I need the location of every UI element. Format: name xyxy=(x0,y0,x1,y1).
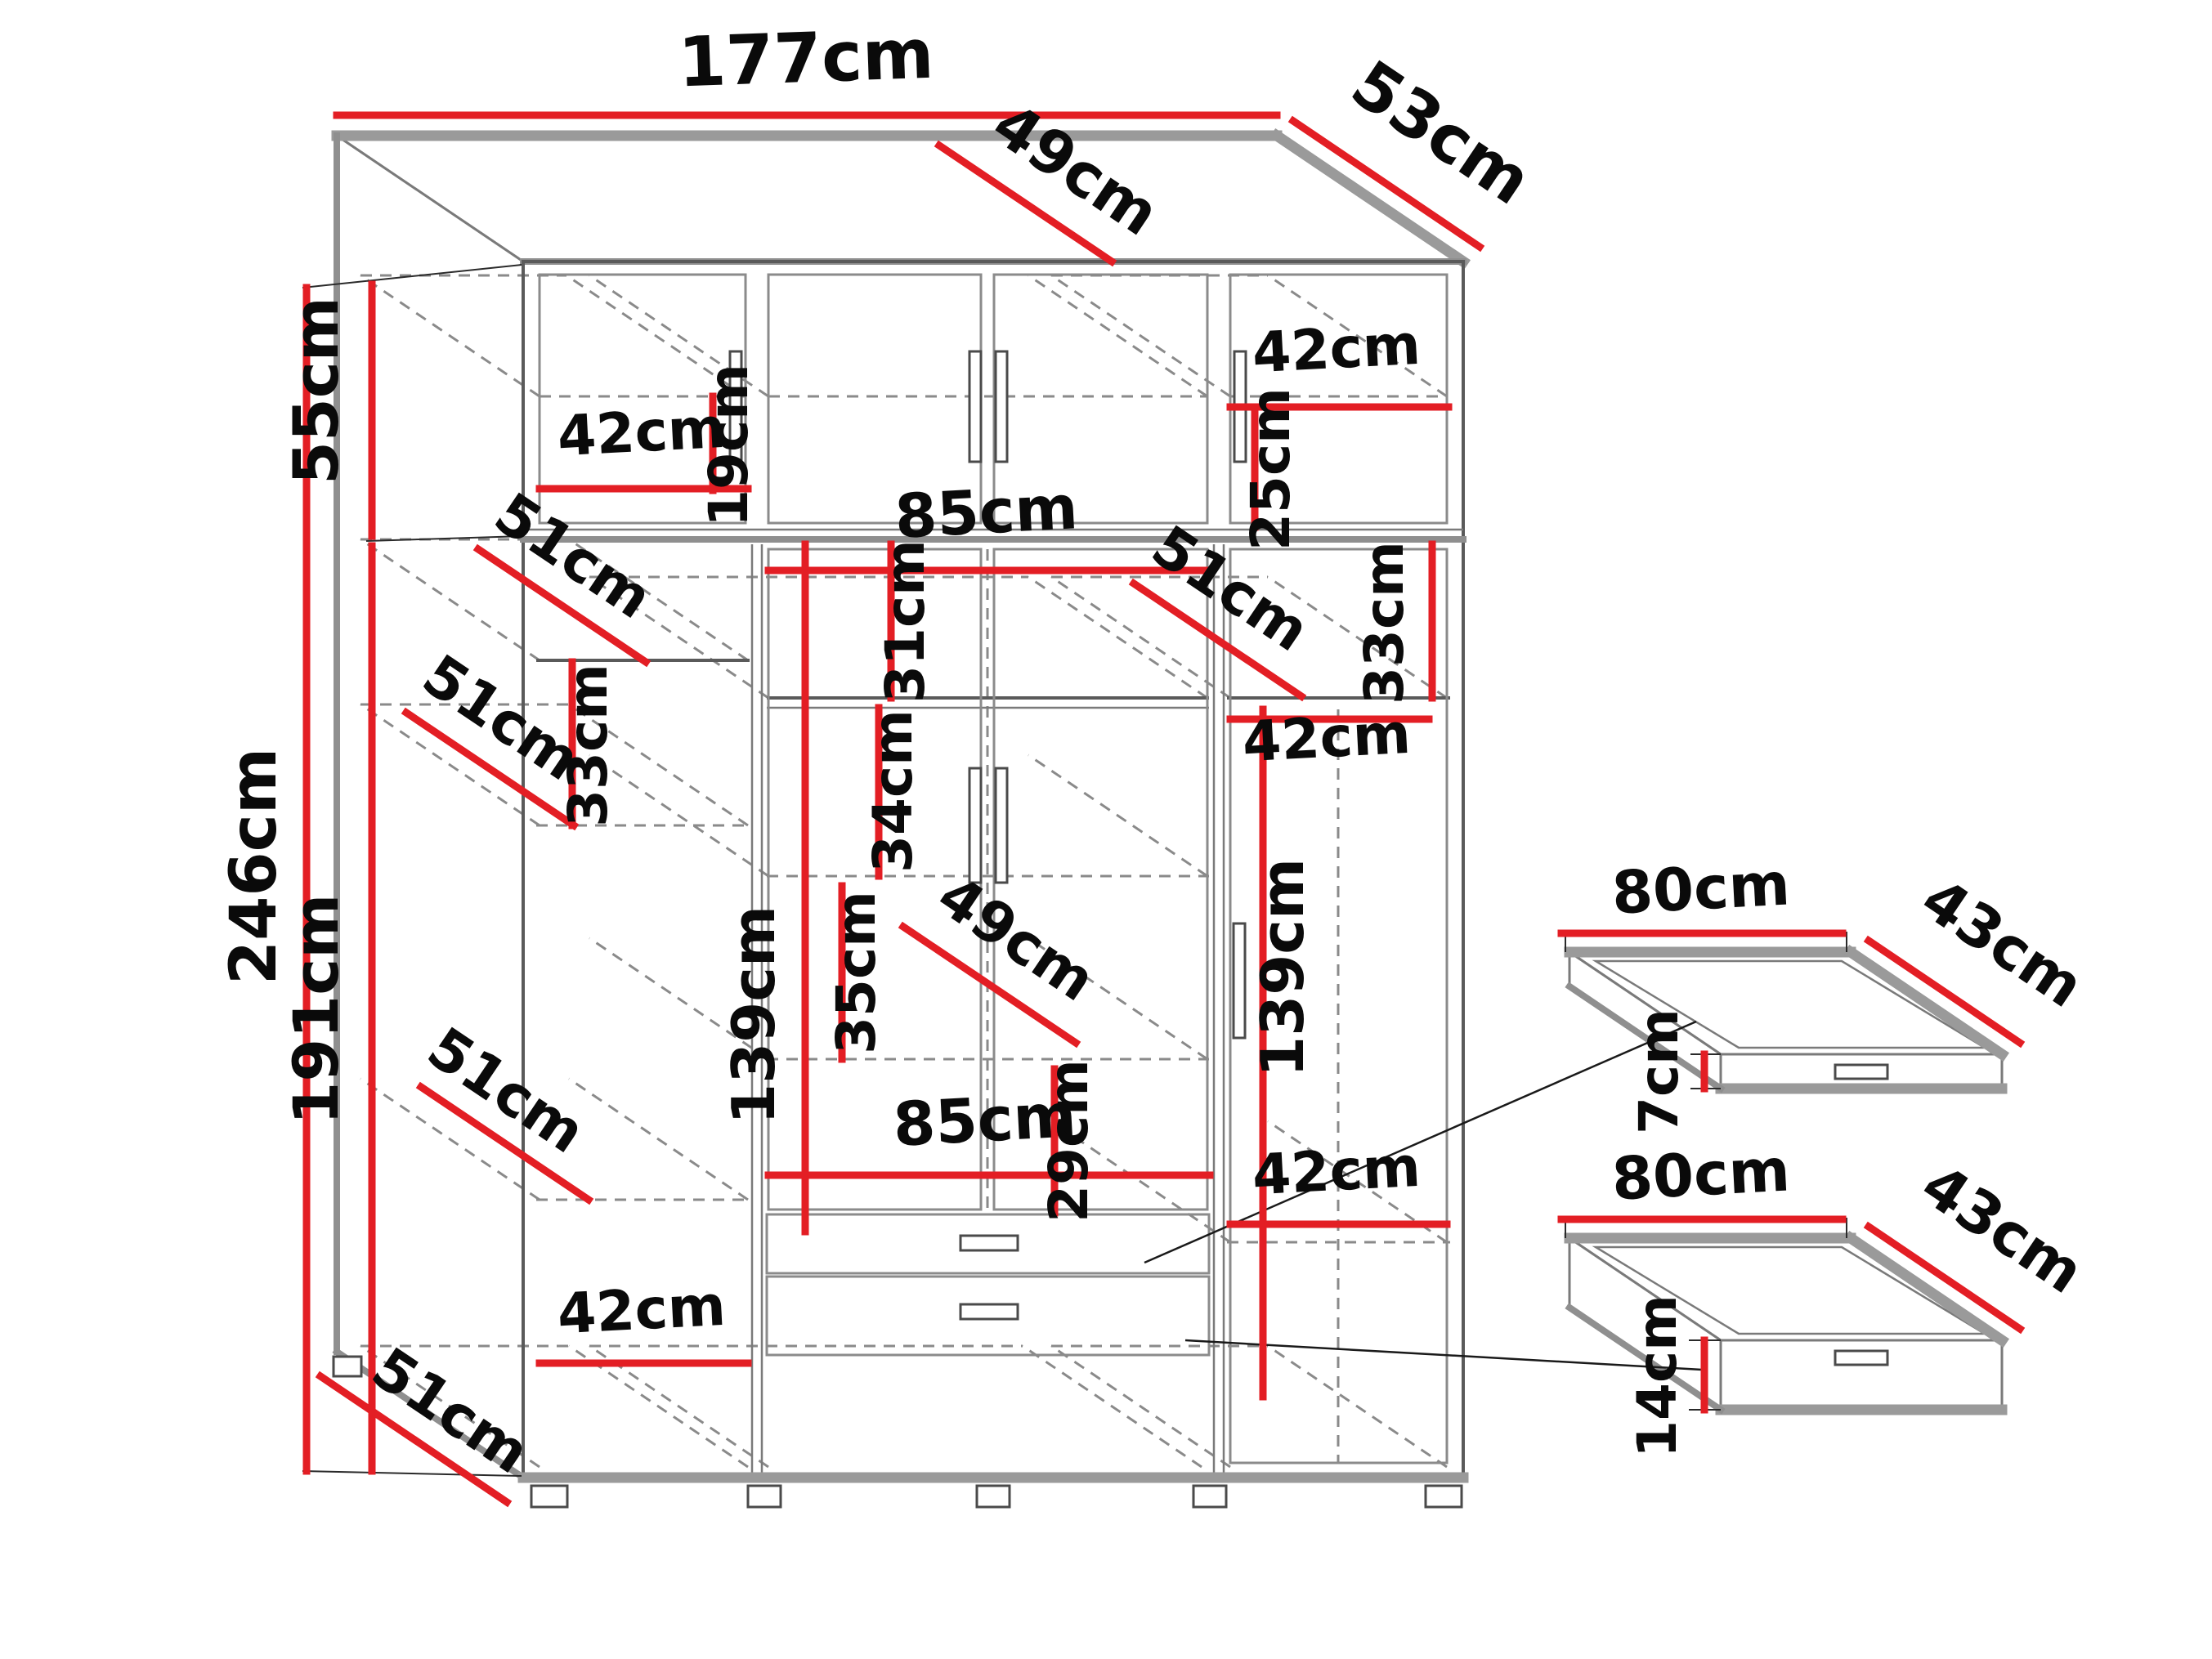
diagram-stage: 177cm53cm55cm246cm191cm49cm42cm19cm85cm4… xyxy=(0,0,2212,1659)
dimension-label-above-drawer-gap: 29cm xyxy=(1037,1059,1100,1223)
dimension-label-drawer1-height: 7cm xyxy=(1628,1008,1690,1134)
foot xyxy=(334,1357,361,1376)
dimension-label-top-section-height: 55cm xyxy=(280,297,352,485)
drawer-handle xyxy=(960,1304,1018,1319)
dimension-label-drawer1-width: 80cm xyxy=(1610,849,1792,927)
door-handle xyxy=(1234,923,1245,1038)
left-side-face xyxy=(337,136,523,1478)
dimension-label-right-cubby-height: 33cm xyxy=(1353,541,1416,704)
dimension-label-bottom-section-height: 191cm xyxy=(280,894,352,1125)
door-handle xyxy=(969,768,981,883)
dimension-label-middle-depth: 49cm xyxy=(926,862,1107,1014)
dimension-label-drawer2-height: 14cm xyxy=(1626,1295,1689,1458)
drawer-handle xyxy=(960,1236,1018,1250)
foot xyxy=(1426,1486,1462,1507)
foot xyxy=(748,1486,781,1507)
foot xyxy=(977,1486,1010,1507)
drawer1-handle xyxy=(1835,1065,1887,1079)
dimension-label-drawer2-width: 80cm xyxy=(1610,1135,1792,1213)
top-face xyxy=(337,136,1463,262)
door-handle xyxy=(996,768,1007,883)
drawer2-handle xyxy=(1835,1351,1887,1365)
dimension-label-middle-top-gap: 31cm xyxy=(874,539,937,703)
dimension-label-drawer2-depth: 43cm xyxy=(1910,1151,2096,1307)
dimension-label-top-right-width: 42cm xyxy=(1251,313,1422,387)
dimension-label-width-total: 177cm xyxy=(677,14,935,103)
door-handle xyxy=(969,351,981,462)
foot xyxy=(1193,1486,1226,1507)
dimension-label-right-interior-height: 139cm xyxy=(1248,858,1317,1077)
wardrobe-dimension-diagram: 177cm53cm55cm246cm191cm49cm42cm19cm85cm4… xyxy=(0,0,2212,1659)
door-handle xyxy=(996,351,1007,462)
dimension-label-bottom-left-width: 42cm xyxy=(556,1274,728,1348)
dimension-label-middle-shelf-gap-2: 35cm xyxy=(825,891,888,1054)
dimension-label-right-cubby-width: 42cm xyxy=(1241,702,1413,776)
dimension-label-drawer1-depth: 43cm xyxy=(1910,865,2096,1021)
dimension-label-top-right-shelf-space: 25cm xyxy=(1239,387,1302,551)
dimension-label-top-left-shelf-space: 19cm xyxy=(697,364,760,527)
dimension-label-right-lower-width: 42cm xyxy=(1251,1135,1422,1209)
dimension-label-middle-shelf-gap-1: 34cm xyxy=(862,709,925,873)
dimension-label-middle-interior-height: 139cm xyxy=(719,906,788,1125)
foot xyxy=(531,1486,567,1507)
